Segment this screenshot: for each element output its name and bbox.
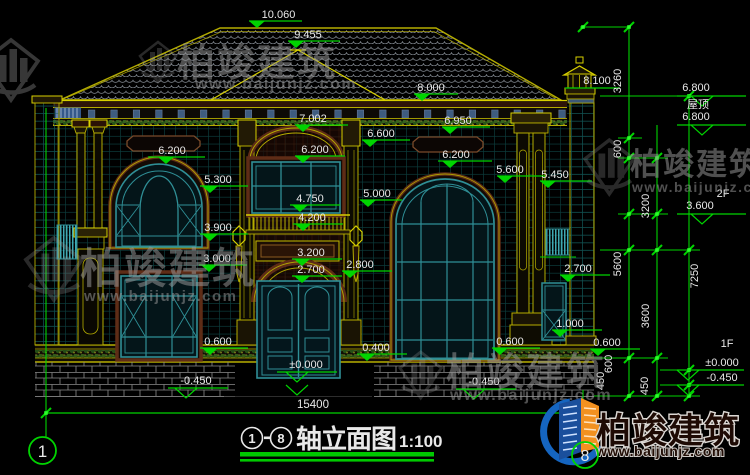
svg-text:3600: 3600	[640, 304, 652, 328]
svg-text:8: 8	[277, 431, 284, 446]
svg-text:4.750: 4.750	[296, 193, 324, 205]
svg-text:8: 8	[581, 448, 590, 465]
svg-text:4.200: 4.200	[298, 212, 326, 224]
svg-text:6.800: 6.800	[682, 82, 710, 94]
svg-text:1.000: 1.000	[556, 318, 584, 330]
svg-text:6.200: 6.200	[442, 149, 470, 161]
svg-text:3.200: 3.200	[297, 247, 325, 259]
svg-text:7250: 7250	[689, 264, 701, 288]
svg-text:柏竣建筑: 柏竣建筑	[80, 245, 256, 292]
svg-text:0.600: 0.600	[496, 336, 524, 348]
svg-text:8.000: 8.000	[417, 82, 445, 94]
svg-text:屋顶: 屋顶	[687, 98, 709, 111]
svg-text:±0.000: ±0.000	[289, 359, 323, 371]
svg-text:10.060: 10.060	[262, 9, 296, 21]
svg-text:6.600: 6.600	[367, 128, 395, 140]
svg-text:1:100: 1:100	[399, 432, 442, 451]
svg-text:5600: 5600	[612, 252, 624, 276]
svg-text:6.950: 6.950	[444, 115, 472, 127]
svg-text:6.800: 6.800	[682, 111, 710, 123]
svg-text:-0.450: -0.450	[180, 375, 211, 387]
svg-text:1: 1	[248, 431, 255, 446]
svg-text:5.000: 5.000	[363, 188, 391, 200]
svg-text:7.002: 7.002	[299, 113, 327, 125]
svg-text:6.200: 6.200	[301, 144, 329, 156]
svg-text:15400: 15400	[297, 399, 329, 411]
svg-text:轴立面图: 轴立面图	[296, 424, 396, 454]
svg-text:2.700: 2.700	[564, 263, 592, 275]
svg-text:0.400: 0.400	[362, 342, 390, 354]
svg-text:3.600: 3.600	[686, 200, 714, 212]
svg-text:0.600: 0.600	[593, 337, 621, 349]
svg-text:www.baijunjz.com: www.baijunjz.com	[631, 179, 750, 195]
svg-text:3200: 3200	[640, 194, 652, 218]
svg-text:www.baijunjz.com: www.baijunjz.com	[595, 443, 725, 459]
svg-text:±0.000: ±0.000	[705, 357, 739, 369]
svg-text:450: 450	[639, 377, 651, 395]
svg-text:5.300: 5.300	[204, 174, 232, 186]
svg-text:9.455: 9.455	[294, 29, 322, 41]
svg-text:2.800: 2.800	[346, 259, 374, 271]
svg-text:0.600: 0.600	[204, 336, 232, 348]
svg-text:2.700: 2.700	[297, 264, 325, 276]
svg-text:8.100: 8.100	[583, 75, 611, 87]
svg-text:1: 1	[38, 442, 47, 461]
svg-text:3.900: 3.900	[204, 222, 232, 234]
svg-text:6.200: 6.200	[158, 145, 186, 157]
svg-text:1F: 1F	[721, 338, 734, 350]
svg-text:-0.450: -0.450	[706, 372, 737, 384]
svg-text:柏竣建筑: 柏竣建筑	[630, 147, 750, 182]
svg-text:5.450: 5.450	[541, 169, 569, 181]
svg-text:www.baijunjz.com: www.baijunjz.com	[194, 76, 357, 93]
svg-text:3260: 3260	[612, 69, 624, 93]
svg-text:5.600: 5.600	[496, 164, 524, 176]
svg-text:www.baijunjz.com: www.baijunjz.com	[83, 288, 237, 305]
